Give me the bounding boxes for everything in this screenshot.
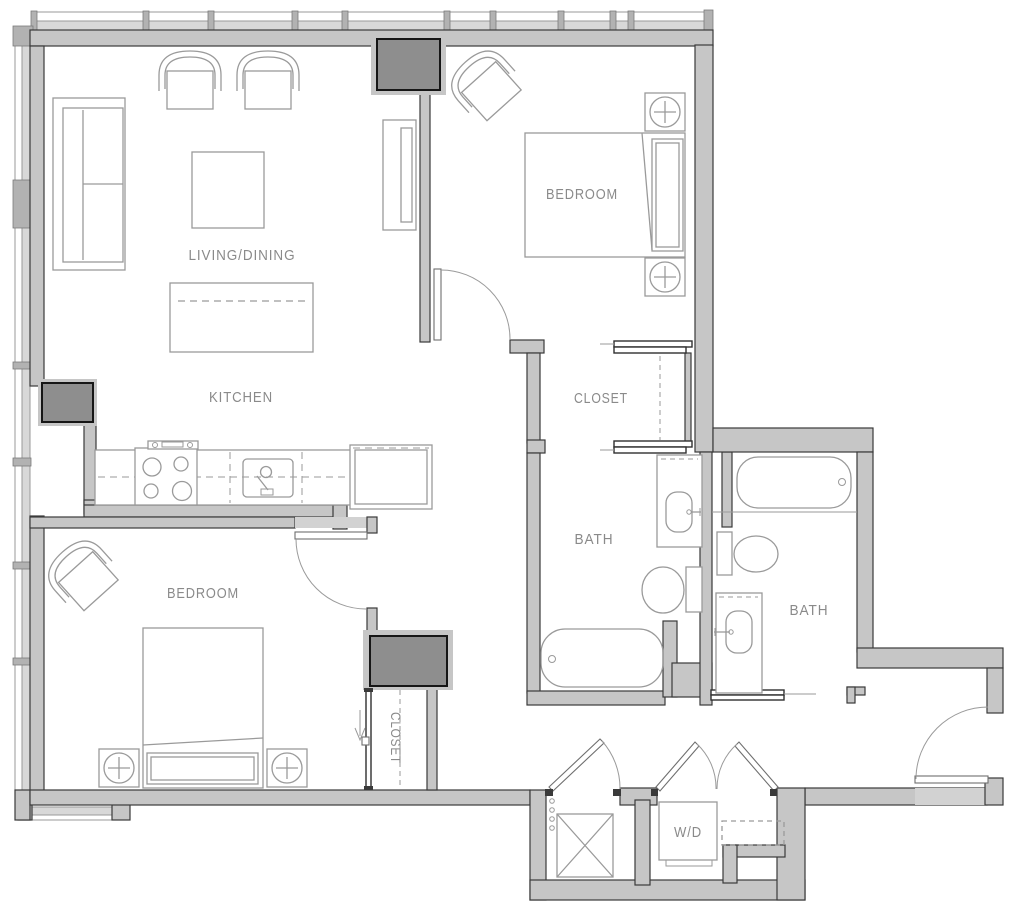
- bathtub-icon: [712, 457, 857, 512]
- wall-segment: [777, 788, 805, 900]
- door-swing-icon: [295, 532, 367, 539]
- window-band-top: [31, 10, 713, 32]
- wall-segment: [30, 46, 44, 386]
- wall-segment: [635, 800, 650, 885]
- wall-segment: [30, 517, 295, 528]
- floor-plan: LIVING/DINING KITCHEN BEDROOM CLOSET BAT…: [0, 0, 1024, 916]
- nightstand-lamp-icon: [645, 93, 685, 131]
- wall-segment: [420, 90, 430, 342]
- vanity-sink-icon: [657, 455, 702, 547]
- door-swing-icon: [434, 269, 441, 340]
- wall-segment: [15, 790, 30, 820]
- room-label-closet-top: CLOSET: [574, 390, 628, 407]
- room-label-bath-second: BATH: [790, 602, 829, 619]
- window-icon: [33, 12, 711, 21]
- bed-icon: [143, 628, 263, 788]
- wall-segment: [685, 353, 691, 443]
- room-label-bedroom-top: BEDROOM: [546, 186, 618, 203]
- wall-segment: [527, 453, 540, 693]
- wall-segment: [427, 686, 437, 790]
- wall-segment: [84, 420, 96, 504]
- column-icon: [370, 636, 447, 686]
- dining-table-icon: [170, 283, 313, 352]
- columns: [38, 33, 453, 690]
- wall-segment: [527, 691, 665, 705]
- sofa-icon: [53, 98, 125, 270]
- armchair-icon: [39, 531, 124, 616]
- range-icon: [135, 441, 198, 505]
- wall-segment: [527, 440, 545, 453]
- wall-segment: [30, 790, 530, 805]
- wall-segment: [847, 687, 855, 703]
- armchair-icon: [159, 51, 221, 109]
- toilet-icon: [717, 532, 778, 575]
- room-label-laundry: W/D: [674, 824, 702, 841]
- wall-segment: [857, 648, 1003, 668]
- wall-segment: [713, 428, 873, 452]
- wall-segment: [30, 516, 44, 798]
- door-swing-icon: [656, 742, 699, 791]
- window-icon: [15, 45, 22, 800]
- wall-segment: [723, 845, 737, 883]
- room-label-living-dining: LIVING/DINING: [189, 247, 296, 264]
- wall-segment: [695, 45, 713, 452]
- column-icon: [377, 39, 440, 90]
- room-label-bath-main: BATH: [575, 531, 614, 548]
- bath-second-fixtures: [712, 457, 857, 693]
- wall-segment: [530, 880, 805, 900]
- wall-segment: [84, 505, 346, 517]
- door-swing-icon: [549, 739, 604, 791]
- wall-segment: [367, 517, 377, 533]
- door-swing-icon: [735, 742, 778, 791]
- wall-segment: [857, 452, 873, 652]
- coffee-table-icon: [192, 152, 264, 228]
- storage-laundry: [550, 799, 784, 877]
- window-mullion-icon: [13, 180, 31, 228]
- room-label-bedroom-lower: BEDROOM: [167, 585, 239, 602]
- door-header: [915, 788, 987, 805]
- wall-segment: [527, 353, 540, 443]
- shelf-unit-icon: [557, 814, 613, 877]
- sliding-door-icon: [362, 688, 373, 790]
- nightstand-lamp-icon: [99, 749, 139, 787]
- entry-arrow-icon: [355, 710, 365, 740]
- window-icon: [22, 45, 30, 800]
- refrigerator-icon: [350, 445, 432, 509]
- armchair-icon: [237, 51, 299, 109]
- door-header: [295, 517, 367, 528]
- wall-segment: [510, 340, 544, 353]
- living-room-furniture: [53, 51, 416, 352]
- door-swing-icon: [915, 776, 988, 783]
- sideboard-icon: [383, 120, 416, 230]
- toilet-icon: [642, 567, 702, 613]
- bath-main-fixtures: [541, 455, 702, 687]
- bathtub-icon: [541, 629, 663, 687]
- room-label-closet-lower: CLOSET: [388, 712, 404, 764]
- bedroom-lower-furniture: [39, 531, 307, 788]
- wall-segment: [722, 452, 732, 527]
- kitchen-fixtures: [95, 441, 432, 509]
- bedroom-top-furniture: [442, 41, 685, 296]
- column-icon: [42, 383, 93, 422]
- room-label-kitchen: KITCHEN: [209, 389, 273, 406]
- floor-plan-page: LIVING/DINING KITCHEN BEDROOM CLOSET BAT…: [0, 0, 1024, 916]
- nightstand-lamp-icon: [645, 258, 685, 296]
- nightstand-lamp-icon: [267, 749, 307, 787]
- armchair-icon: [442, 41, 527, 126]
- wall-segment: [987, 668, 1003, 713]
- vanity-sink-icon: [714, 593, 762, 693]
- coat-hooks-icon: [550, 799, 555, 831]
- window-icon: [33, 21, 711, 30]
